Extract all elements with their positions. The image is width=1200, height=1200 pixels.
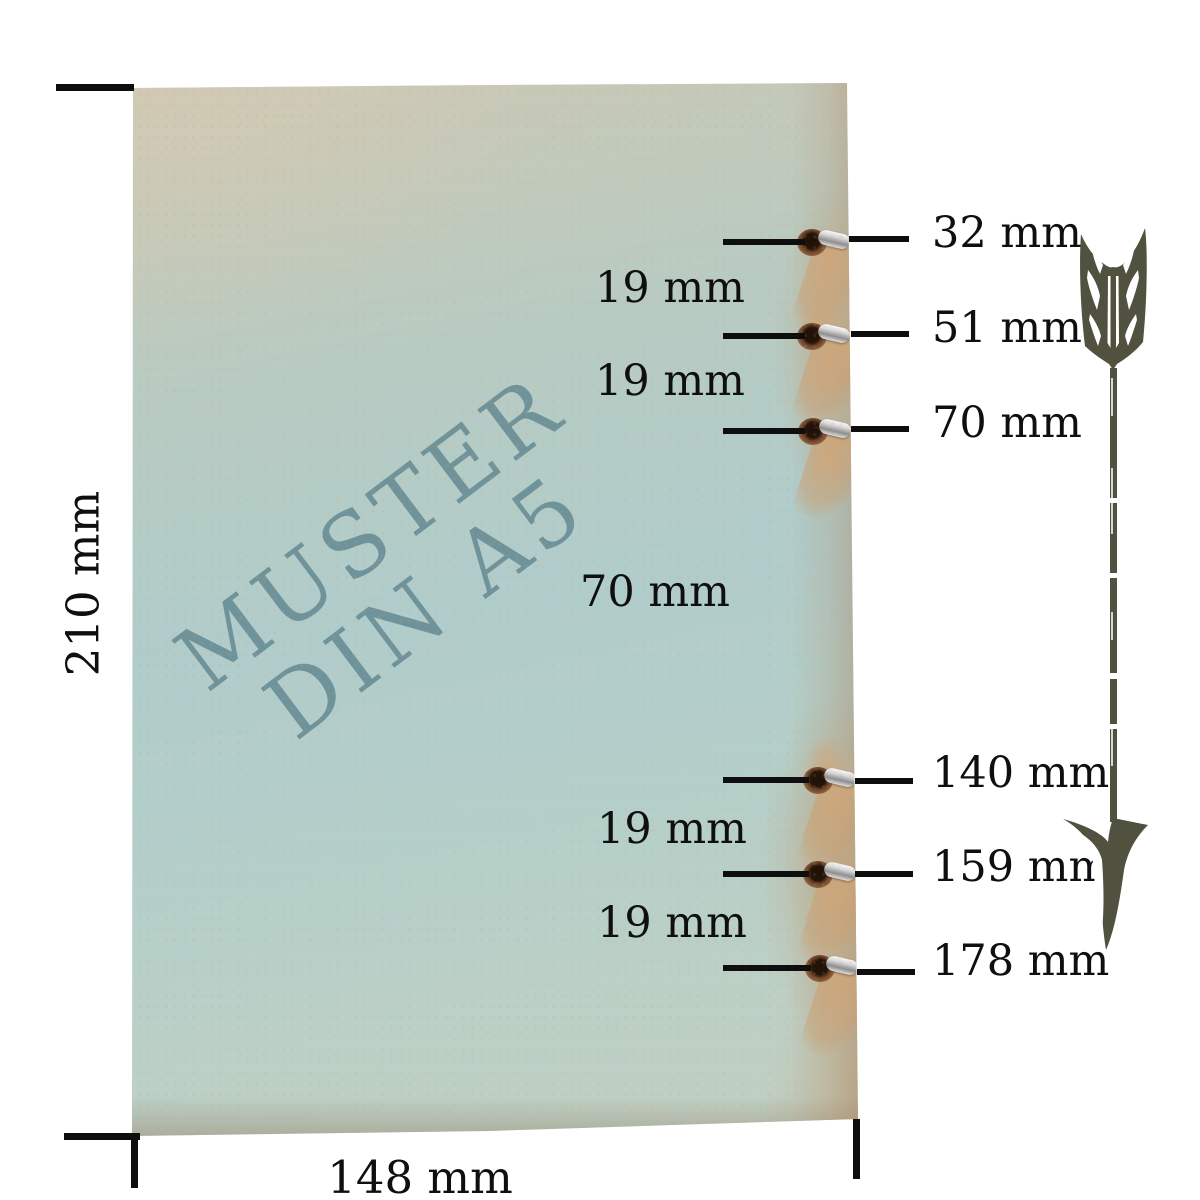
leader-line-right-159mm [855, 871, 913, 877]
tick-bottom-right-vertical [853, 1119, 860, 1179]
spacing-label-4: 19 mm [597, 808, 747, 851]
leader-line-left-70mm [723, 428, 805, 434]
hole-wear-smudge [790, 332, 870, 433]
leader-line-left-51mm [723, 333, 805, 339]
leader-line-right-51mm [851, 331, 909, 337]
spacing-label-3: 70 mm [580, 571, 730, 614]
tick-top-left [56, 84, 134, 91]
paper-edge-wear-bottom [760, 690, 860, 1050]
hole-wear-smudge [806, 735, 848, 783]
eyelet-ring-140mm [823, 767, 858, 789]
leader-line-left-159mm [723, 871, 809, 877]
leader-line-left-140mm [723, 777, 809, 783]
paper-edge-wear-top [770, 180, 860, 510]
hole-wear-smudge [791, 427, 871, 528]
leader-line-right-70mm [851, 426, 909, 432]
hole-wear-smudge [798, 964, 878, 1065]
leader-line-right-178mm [857, 969, 915, 975]
height-dimension-label: 210 mm [61, 474, 106, 694]
hole-wear-smudge [796, 870, 876, 971]
hole-wear-smudge [800, 292, 842, 340]
leader-line-right-32mm [849, 236, 909, 242]
eyelet-ring-178mm [825, 955, 860, 977]
paper-bottom-shadow [120, 1096, 860, 1138]
watermark-line-1: MUSTER [135, 340, 605, 726]
leader-line-right-140mm [855, 778, 913, 784]
leader-line-left-178mm [723, 965, 811, 971]
spacing-label-2: 19 mm [595, 360, 745, 403]
spacing-label-1: 19 mm [595, 267, 745, 310]
hole-wear-smudge [796, 776, 876, 877]
down-arrow-icon [1050, 218, 1170, 958]
tick-bottom-left-vertical [131, 1140, 138, 1188]
tick-bottom-left-horizontal [64, 1133, 140, 1140]
width-dimension-label: 148 mm [320, 1155, 520, 1200]
paper-edge-wear [790, 60, 860, 1140]
leader-line-left-32mm [723, 239, 805, 245]
eyelet-ring-51mm [817, 323, 852, 345]
eyelet-ring-32mm [817, 229, 852, 251]
hole-wear-smudge [790, 238, 870, 339]
din-a5-hole-diagram: MUSTER DIN A5 210 mm 148 mm [0, 0, 1200, 1200]
eyelet-ring-159mm [823, 861, 858, 883]
spacing-label-5: 19 mm [597, 902, 747, 945]
eyelet-ring-70mm [818, 418, 853, 440]
